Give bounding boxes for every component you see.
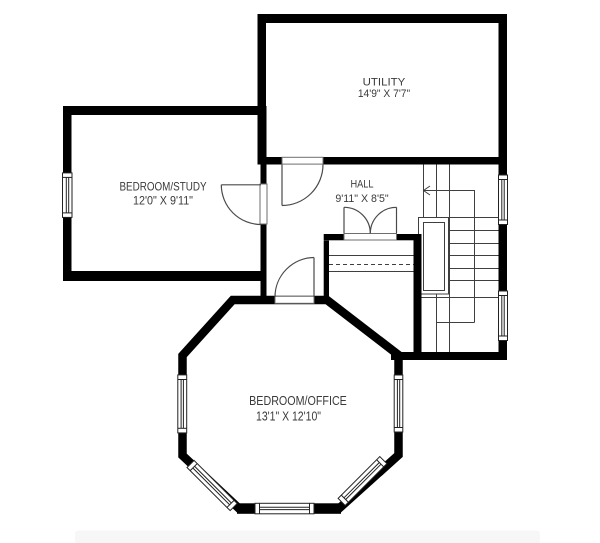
- svg-text:BEDROOM/OFFICE: BEDROOM/OFFICE: [249, 393, 347, 408]
- svg-text:HALL: HALL: [350, 179, 373, 191]
- svg-text:UTILITY: UTILITY: [363, 76, 406, 88]
- svg-text:12'0" X 9'11": 12'0" X 9'11": [133, 194, 193, 208]
- svg-text:14'9" X 7'7": 14'9" X 7'7": [358, 88, 410, 100]
- svg-text:9'11" X 8'5": 9'11" X 8'5": [335, 193, 388, 205]
- svg-text:BEDROOM/STUDY: BEDROOM/STUDY: [119, 180, 206, 194]
- svg-text:13'1" X 12'10": 13'1" X 12'10": [256, 409, 321, 424]
